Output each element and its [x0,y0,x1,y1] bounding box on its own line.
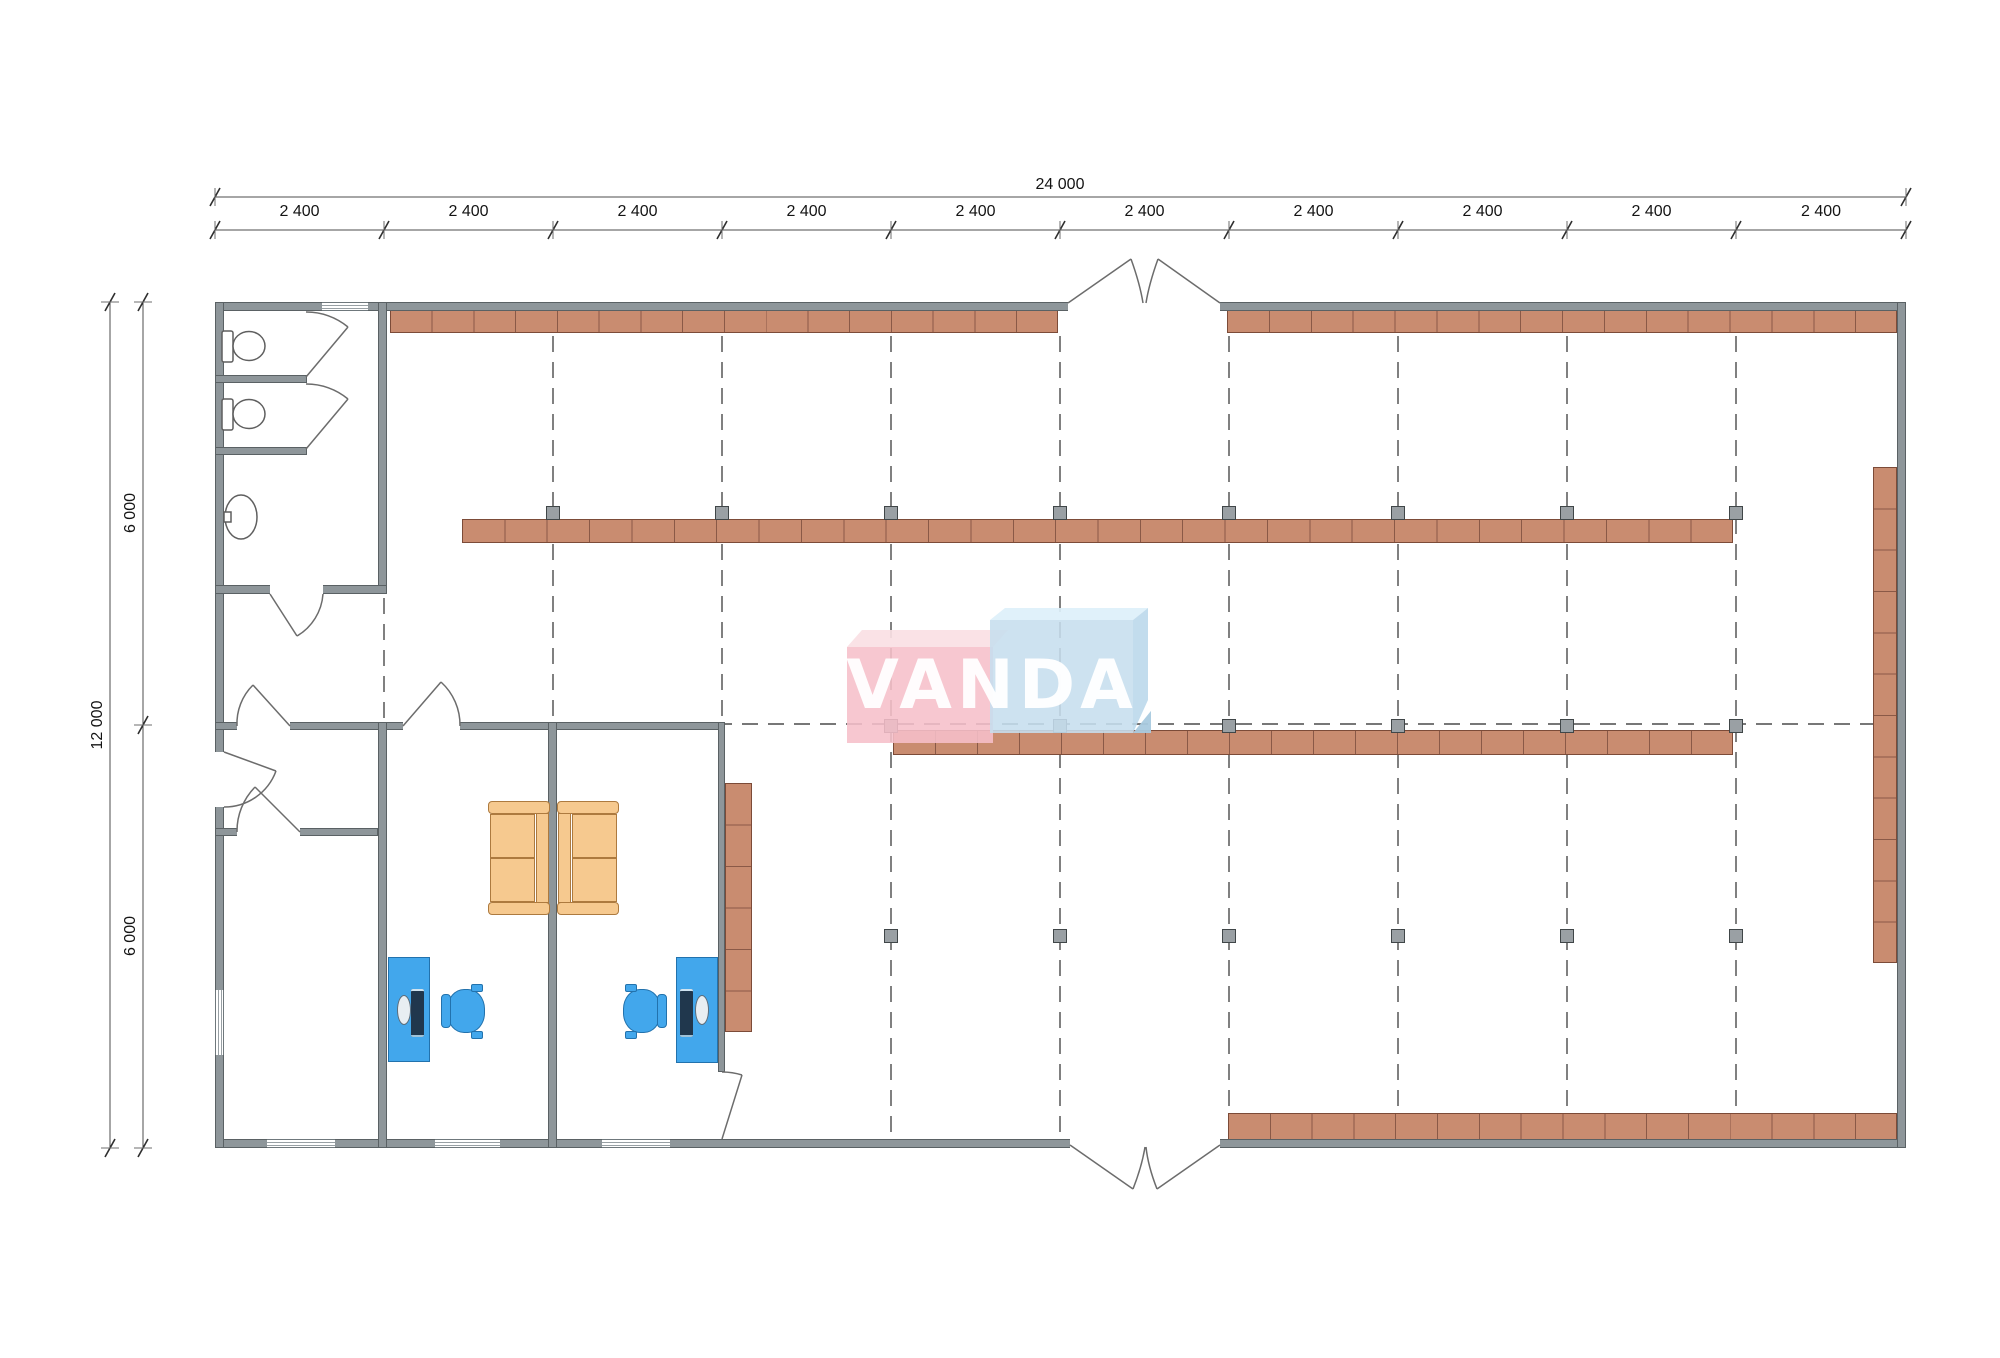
vestibule-door-arc [237,787,255,832]
toilet-1-tank-icon [222,331,233,362]
side-entrance-leaf [224,752,276,771]
wc-stall-door-2-arc [306,384,348,399]
office-door-2-arc [441,682,460,726]
office-door-2-leaf [403,682,441,726]
bottom-entrance-left-leaf [1070,1145,1133,1189]
logo-pink-box-top-face [847,630,1008,647]
vestibule-door-leaf [255,787,300,832]
office-door-1-arc [237,685,253,726]
bottom-entrance-left-arc [1133,1147,1145,1189]
washbasin-tap-icon [224,512,231,522]
wc-stall-door-2-leaf [306,399,348,449]
top-entrance-left-arc [1131,259,1143,303]
bottom-entrance-right-arc [1146,1147,1157,1189]
toilet-1-bowl-icon [233,332,265,361]
top-entrance-right-leaf [1158,259,1220,303]
toilet-2-tank-icon [222,399,233,430]
bottom-entrance-right-leaf [1157,1145,1220,1189]
logo-blue-box-top-face [990,608,1148,620]
sanitary-fixtures [222,331,265,539]
top-entrance-left-leaf [1068,259,1131,303]
wc-door-leaf [270,594,297,636]
toilet-2-bowl-icon [233,400,265,429]
office-door-1-leaf [253,685,290,726]
wc-stall-door-1-leaf [306,327,348,377]
office-rear-door-leaf [722,1075,742,1139]
logo-wordmark: VANDA [846,648,1138,724]
office-rear-door-arc [722,1072,742,1075]
wc-stall-door-1-arc [306,312,348,327]
floor-plan-page: 24 000 12 000 6 000 6 000 2 4002 4002 40… [0,0,2000,1358]
top-entrance-right-arc [1146,259,1158,303]
side-entrance-arc [224,771,276,807]
wc-door-arc [297,594,323,636]
